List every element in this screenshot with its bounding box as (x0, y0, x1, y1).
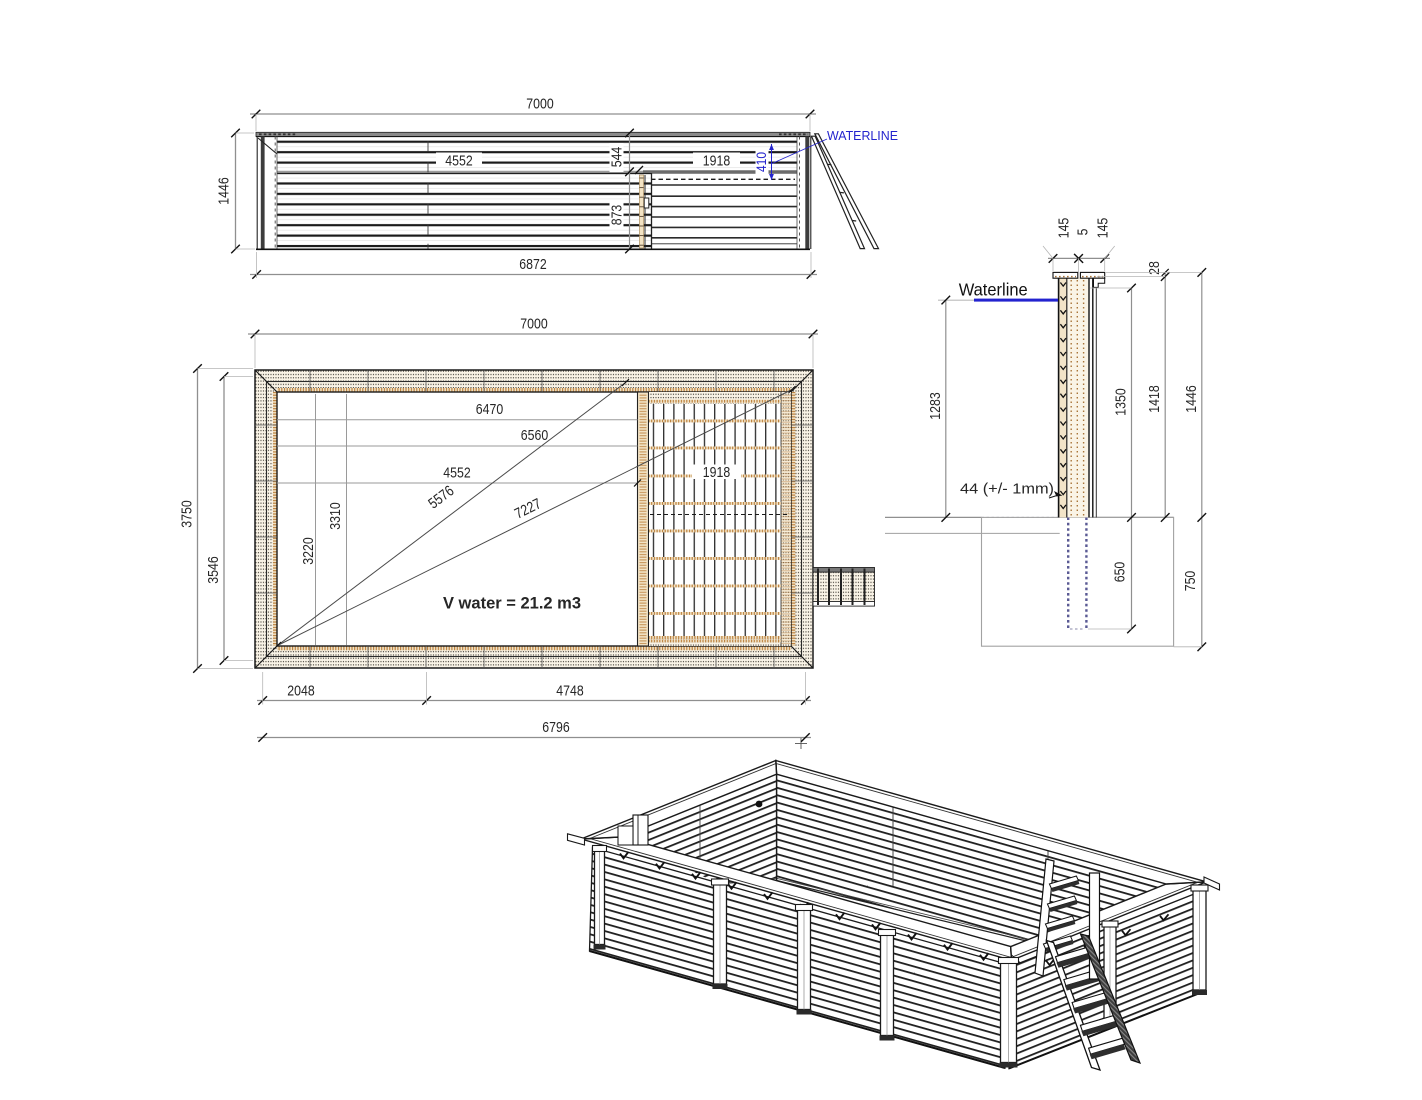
svg-text:WATERLINE: WATERLINE (827, 128, 898, 143)
svg-text:5: 5 (1075, 229, 1092, 236)
svg-text:1446: 1446 (216, 177, 233, 204)
svg-text:7000: 7000 (520, 316, 547, 333)
svg-text:1350: 1350 (1113, 388, 1130, 415)
svg-text:44 (+/- 1mm): 44 (+/- 1mm) (960, 481, 1054, 498)
svg-text:4552: 4552 (443, 465, 470, 482)
svg-text:1446: 1446 (1183, 385, 1200, 412)
svg-text:6470: 6470 (476, 401, 503, 418)
svg-text:6560: 6560 (521, 427, 548, 444)
svg-text:873: 873 (609, 205, 626, 226)
svg-text:6872: 6872 (519, 256, 546, 273)
svg-text:145: 145 (1056, 218, 1073, 239)
svg-text:V water = 21.2 m3: V water = 21.2 m3 (443, 595, 581, 613)
svg-text:7000: 7000 (526, 96, 553, 113)
svg-text:1918: 1918 (703, 152, 730, 169)
svg-text:750: 750 (1182, 571, 1199, 592)
svg-text:Waterline: Waterline (959, 279, 1028, 299)
svg-text:3220: 3220 (300, 537, 317, 564)
svg-text:544: 544 (609, 147, 626, 168)
svg-text:4748: 4748 (556, 683, 583, 700)
svg-text:4552: 4552 (445, 152, 472, 169)
svg-text:650: 650 (1112, 562, 1129, 583)
svg-text:6796: 6796 (542, 719, 569, 736)
svg-text:410: 410 (754, 152, 769, 172)
svg-text:3546: 3546 (205, 556, 222, 583)
svg-text:3750: 3750 (179, 500, 196, 527)
svg-text:2048: 2048 (287, 683, 314, 700)
svg-text:1418: 1418 (1146, 385, 1163, 412)
svg-text:1918: 1918 (703, 464, 730, 481)
svg-text:3310: 3310 (327, 502, 344, 529)
svg-text:1283: 1283 (927, 392, 944, 419)
svg-text:145: 145 (1095, 218, 1112, 239)
